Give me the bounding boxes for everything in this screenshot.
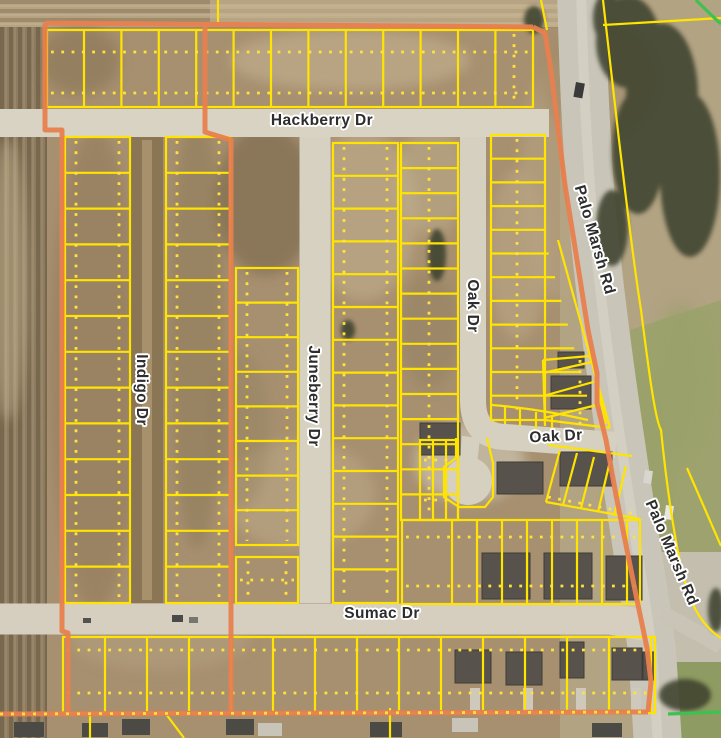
road-oak-culdesac (444, 457, 492, 505)
building-roof (560, 642, 584, 678)
trail-southeast (668, 712, 721, 714)
house-roof (122, 719, 150, 735)
street-label-juneberry: Juneberry Dr (304, 345, 322, 446)
house-roof (82, 723, 108, 737)
house-roof (14, 722, 44, 737)
building-roof (482, 553, 530, 599)
dirt-patch (230, 30, 470, 90)
house-roof (370, 722, 402, 737)
road-sumac (0, 619, 648, 626)
car (83, 618, 91, 623)
building-roof (455, 650, 491, 683)
house-roof (226, 719, 254, 735)
street-label-oak-horizontal: Oak Dr (529, 427, 583, 448)
street-label-sumac: Sumac Dr (344, 605, 420, 623)
street-label-indigo: Indigo Dr (132, 354, 150, 426)
house-roof (452, 718, 478, 732)
street-label-oak-vertical: Oak Dr (463, 279, 481, 332)
dirt-patch (169, 110, 225, 550)
house-roof (258, 723, 282, 736)
tree (428, 229, 446, 281)
car (189, 617, 198, 623)
map-canvas (0, 0, 721, 738)
tree (659, 679, 711, 711)
car (172, 615, 183, 622)
house-roof (592, 723, 622, 737)
street-label-hackberry: Hackberry Dr (271, 112, 373, 130)
tree (660, 93, 720, 257)
building-roof (612, 648, 642, 680)
aerial-map[interactable]: Hackberry Dr Indigo Dr Juneberry Dr Oak … (0, 0, 721, 738)
dirt-patch (400, 270, 460, 390)
dirt-patch (40, 25, 120, 95)
building-roof (497, 462, 543, 494)
